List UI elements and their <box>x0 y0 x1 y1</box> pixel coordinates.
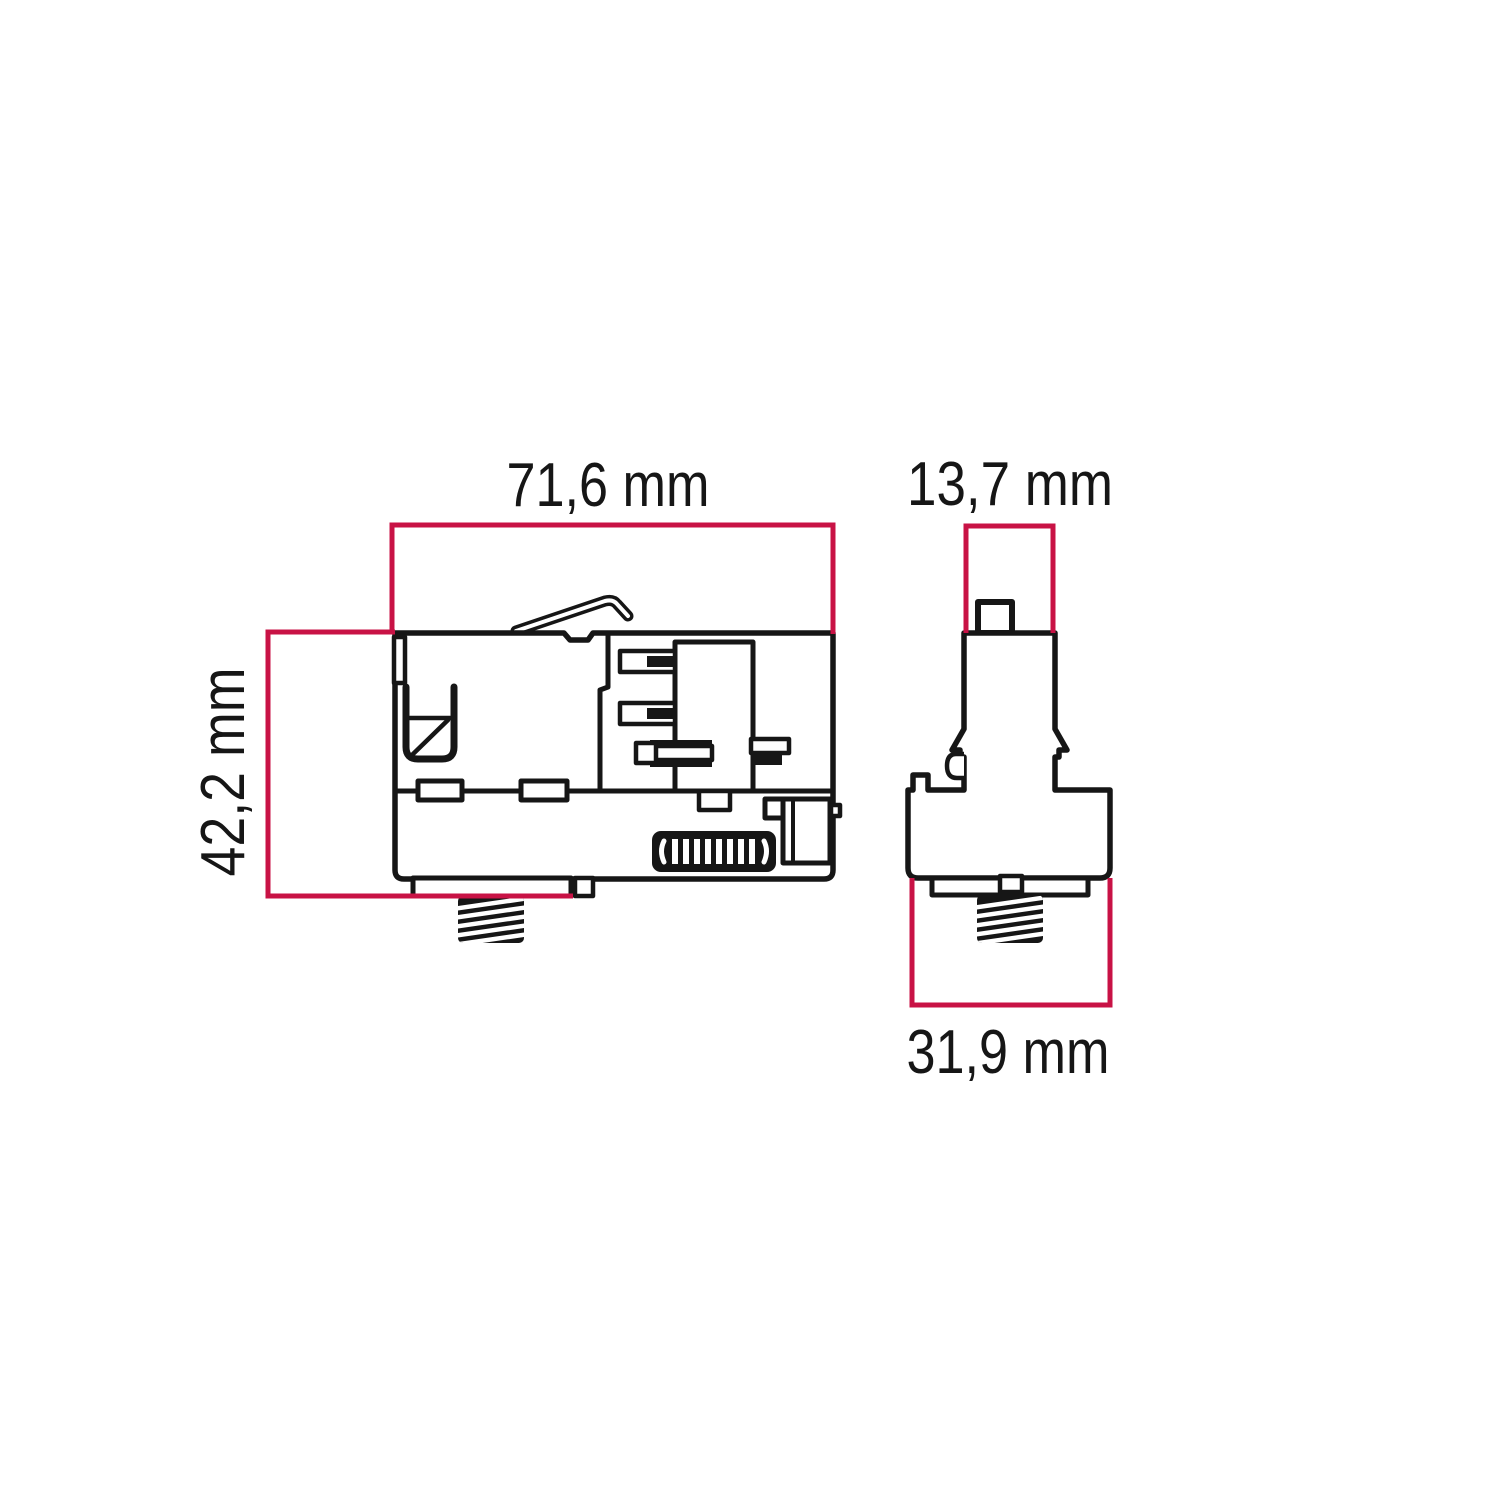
front-latch-curl <box>947 754 964 778</box>
dimension-drawing: 71,6 mm 42,2 mm 13,7 mm 31,9 mm <box>0 0 1500 1500</box>
front-threaded-stud <box>972 895 1048 944</box>
adjustment-grill <box>652 831 776 872</box>
side-view-drawing <box>394 600 840 945</box>
contact-housing <box>675 642 753 791</box>
dimension-label-31-9: 31,9 mm <box>907 1018 1110 1087</box>
front-base-plate <box>932 876 1088 895</box>
front-top-knob <box>978 602 1012 633</box>
side-threaded-stud <box>453 896 529 945</box>
front-body-outline <box>908 633 1110 878</box>
drawing-canvas: 71,6 mm 42,2 mm 13,7 mm 31,9 mm <box>0 0 1500 1500</box>
dimension-label-71-6: 71,6 mm <box>507 451 710 520</box>
dimension-label-42-2: 42,2 mm <box>189 668 258 877</box>
u-clip <box>406 687 454 759</box>
front-view-drawing <box>908 602 1110 944</box>
side-left-slot <box>394 637 405 683</box>
dimension-label-13-7: 13,7 mm <box>907 450 1113 519</box>
side-base-plate <box>413 878 593 896</box>
housing-bottom-tab <box>699 791 730 810</box>
latch-lever <box>516 600 628 631</box>
